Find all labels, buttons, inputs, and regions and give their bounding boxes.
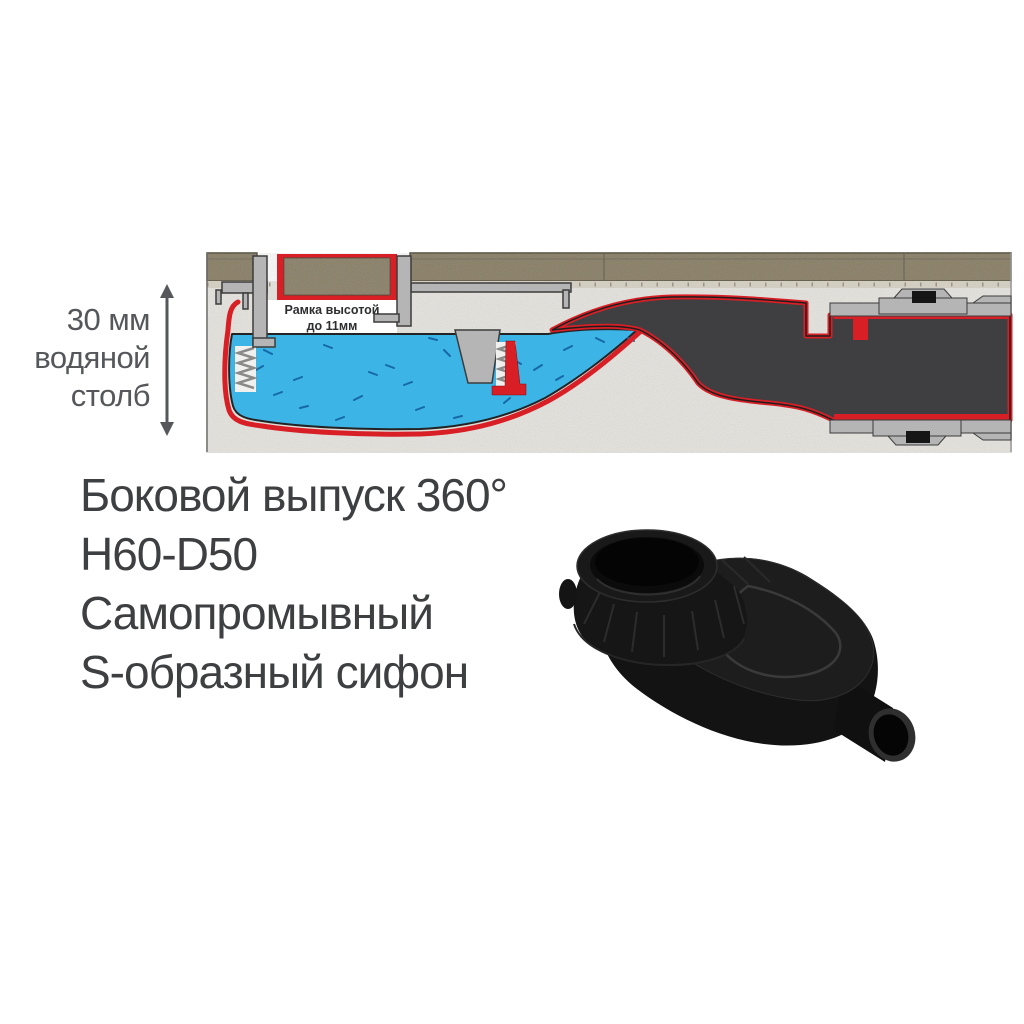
water-column-line1: 30 мм — [6, 301, 150, 339]
water-column-line3: столб — [6, 377, 150, 415]
feature-selfcleaning: Самопромывный — [80, 584, 507, 643]
water-column-line2: водяной — [6, 339, 150, 377]
pipe-seal-bottom — [834, 414, 1009, 420]
water-column-label: 30 мм водяной столб — [6, 301, 150, 415]
grate-frame-tile-insert — [277, 254, 397, 300]
coupling-clamp-bottom — [906, 431, 930, 443]
feature-outlet: Боковой выпуск 360° — [80, 466, 507, 525]
feature-s-trap: S-образный сифон — [80, 643, 507, 702]
feature-list: Боковой выпуск 360° H60-D50 Самопромывны… — [80, 466, 507, 702]
feature-model: H60-D50 — [80, 525, 507, 584]
product-info-card: 30 мм водяной столб — [0, 0, 1024, 1024]
frame-height-label-line2: до 11мм — [307, 319, 358, 333]
arrow-up-head — [160, 284, 174, 298]
arrow-down-head — [160, 422, 174, 436]
cup-side-tab — [559, 579, 577, 609]
siphon-product-photo — [552, 494, 952, 794]
water-column-arrow — [152, 284, 182, 436]
coupling-clamp-top — [912, 291, 936, 303]
drain-cross-section-diagram: Рамка высотой до 11мм — [204, 250, 1014, 455]
frame-height-label-line1: Рамка высотой — [285, 303, 380, 317]
cup-opening — [595, 538, 699, 586]
